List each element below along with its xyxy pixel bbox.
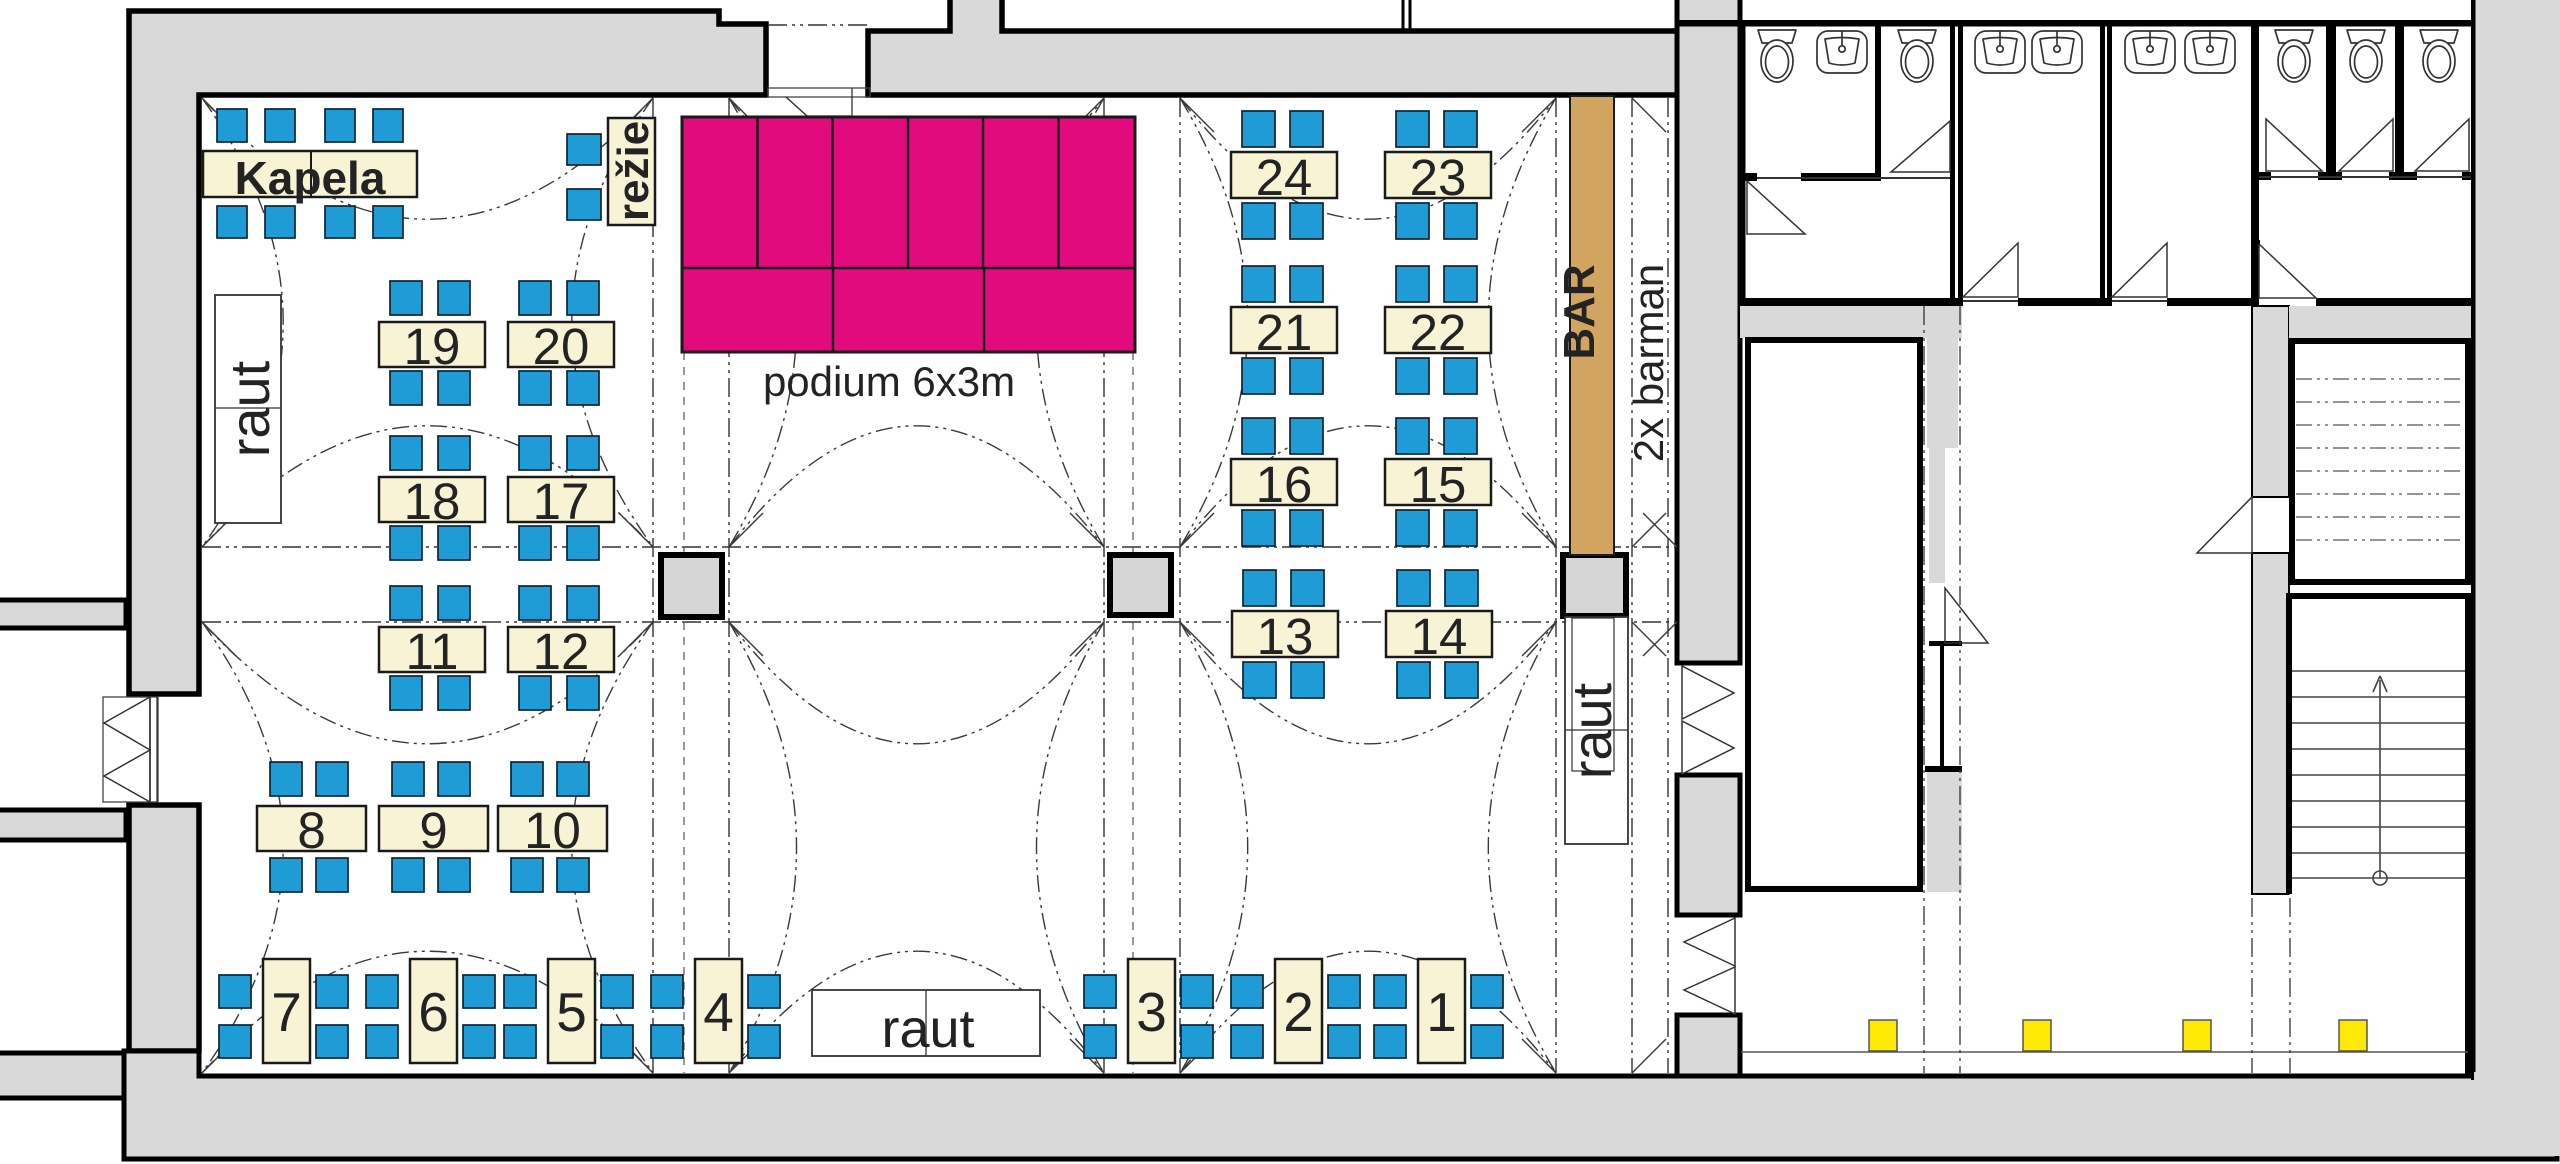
svg-text:BAR: BAR bbox=[1555, 264, 1604, 359]
svg-text:2: 2 bbox=[1283, 981, 1314, 1043]
svg-text:20: 20 bbox=[533, 318, 590, 375]
svg-text:8: 8 bbox=[297, 802, 325, 859]
svg-text:22: 22 bbox=[1410, 304, 1467, 361]
svg-text:raut: raut bbox=[218, 360, 281, 457]
svg-text:9: 9 bbox=[419, 802, 447, 859]
svg-text:7: 7 bbox=[271, 981, 302, 1043]
svg-text:Kapela: Kapela bbox=[235, 152, 386, 204]
svg-text:18: 18 bbox=[404, 473, 461, 530]
svg-text:24: 24 bbox=[1256, 149, 1313, 206]
svg-text:11: 11 bbox=[406, 623, 459, 680]
svg-text:14: 14 bbox=[1411, 608, 1468, 665]
svg-text:režie: režie bbox=[609, 121, 658, 221]
svg-text:23: 23 bbox=[1410, 149, 1467, 206]
svg-text:13: 13 bbox=[1257, 608, 1314, 665]
svg-text:19: 19 bbox=[404, 318, 461, 375]
svg-text:6: 6 bbox=[418, 981, 449, 1043]
svg-text:4: 4 bbox=[703, 981, 734, 1043]
svg-text:raut: raut bbox=[1560, 682, 1623, 779]
svg-text:10: 10 bbox=[524, 802, 581, 859]
svg-text:1: 1 bbox=[1426, 981, 1457, 1043]
svg-text:2x barman: 2x barman bbox=[1625, 264, 1672, 462]
svg-text:5: 5 bbox=[556, 981, 587, 1043]
svg-text:12: 12 bbox=[533, 623, 590, 680]
svg-text:21: 21 bbox=[1256, 304, 1313, 361]
svg-text:raut: raut bbox=[881, 999, 974, 1059]
svg-text:15: 15 bbox=[1410, 456, 1467, 513]
svg-text:16: 16 bbox=[1256, 456, 1313, 513]
svg-text:3: 3 bbox=[1136, 981, 1167, 1043]
svg-text:17: 17 bbox=[533, 473, 590, 530]
svg-text:podium 6x3m: podium 6x3m bbox=[763, 358, 1015, 405]
